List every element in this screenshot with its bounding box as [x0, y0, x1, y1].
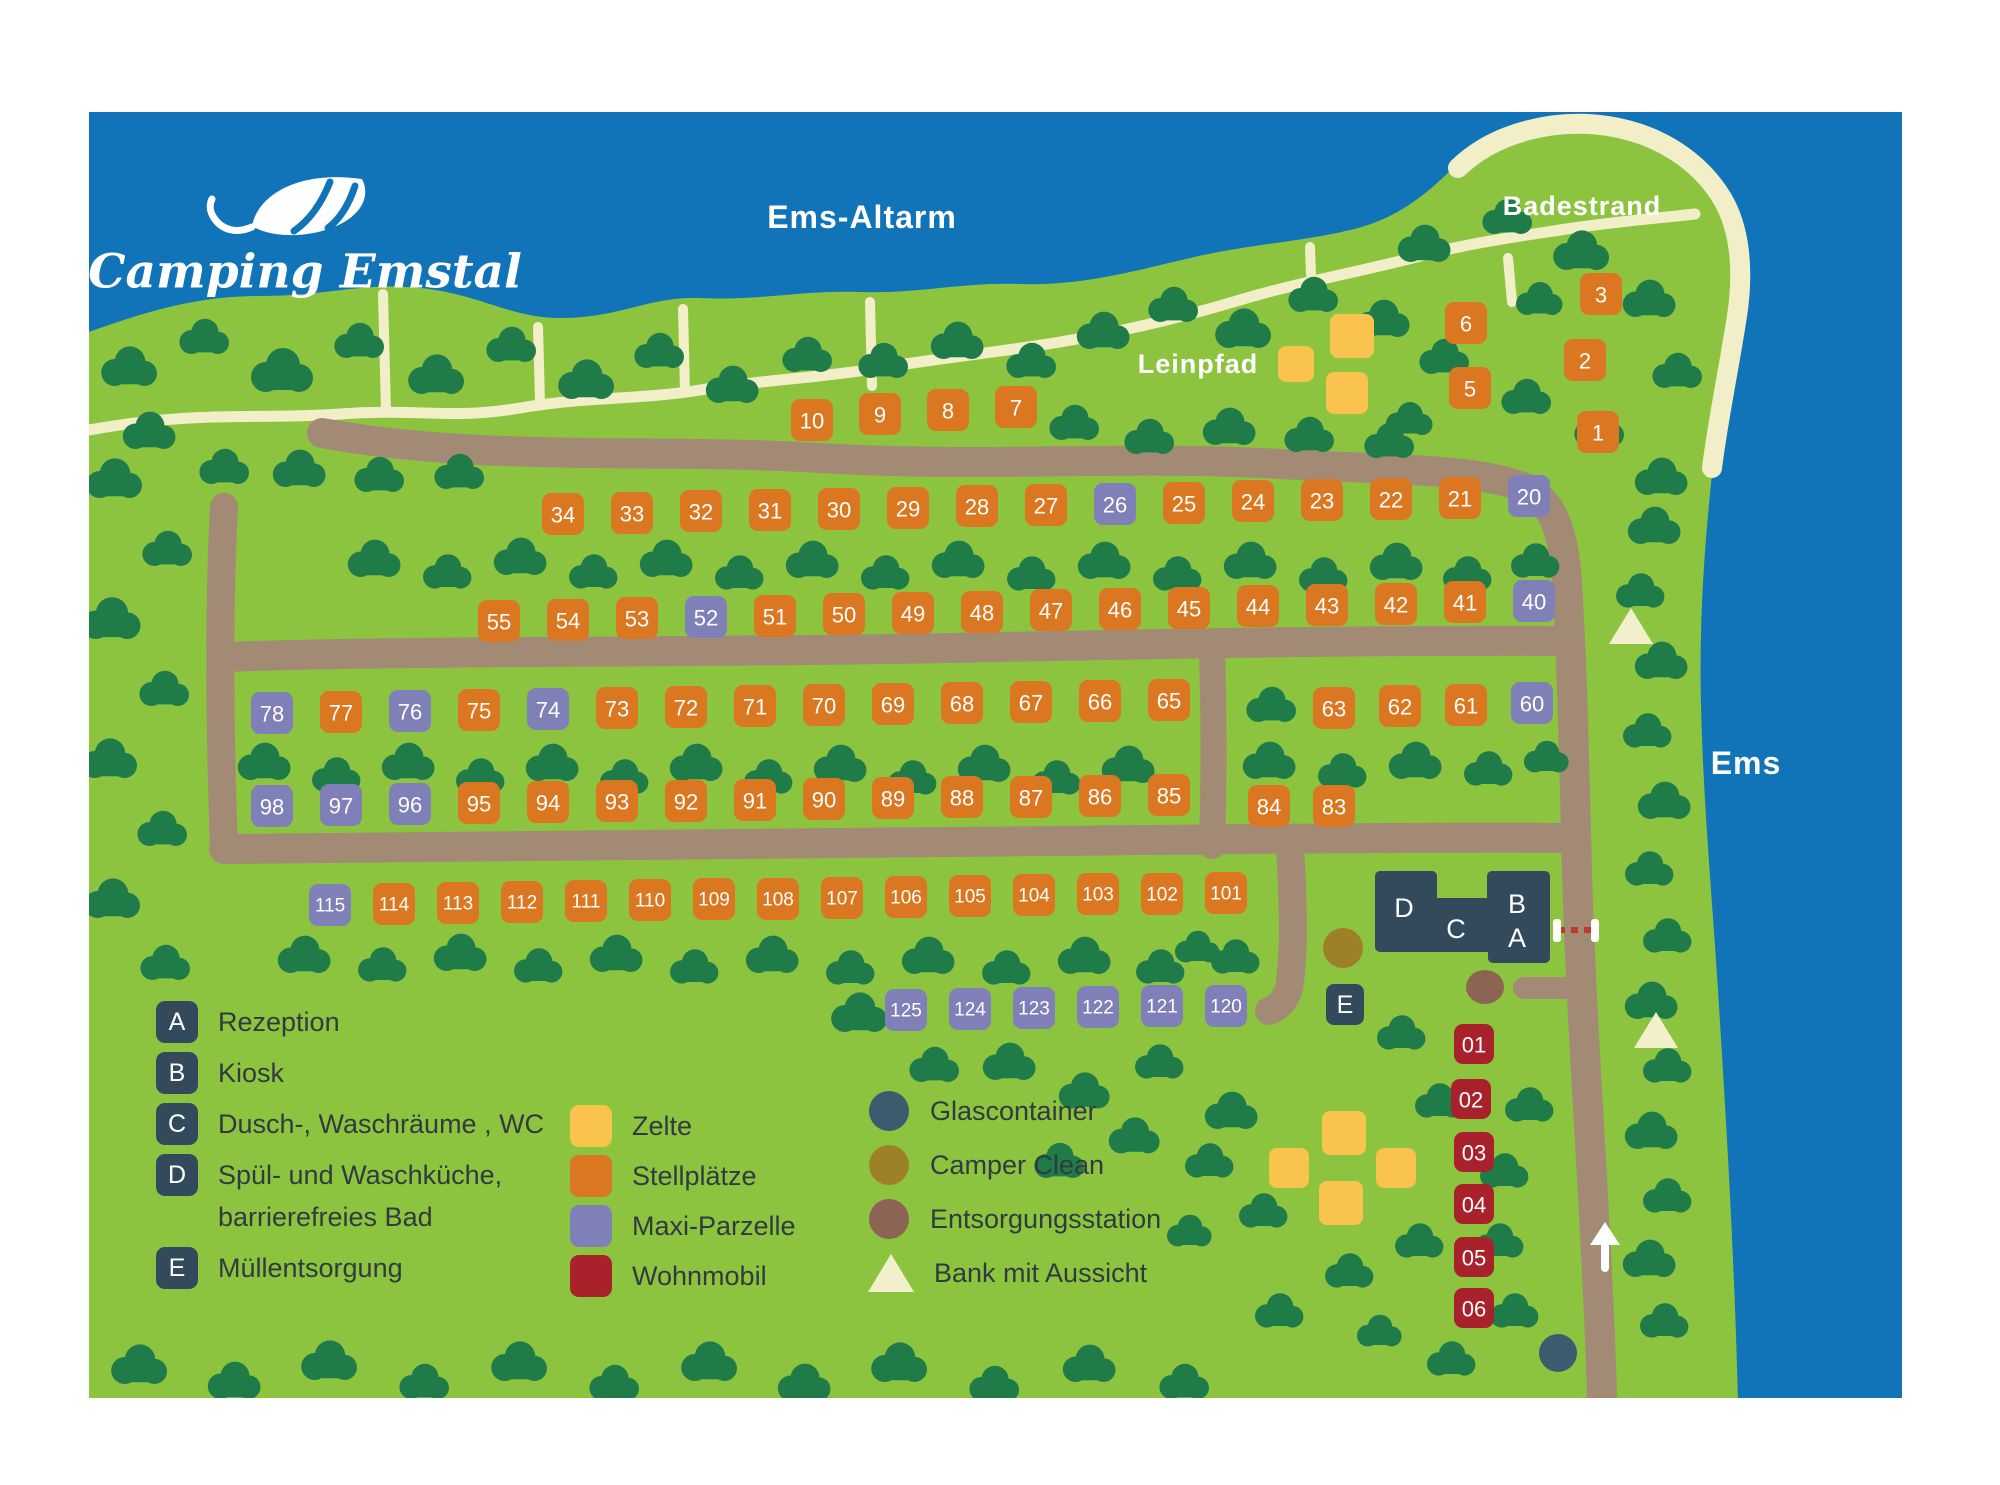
plot-number: 44 [1246, 595, 1270, 620]
plot-number: 94 [536, 791, 560, 816]
plot-103: 103 [1077, 873, 1119, 915]
plot-number: 63 [1322, 697, 1346, 722]
building-letter-b: B [1508, 889, 1526, 919]
plot-number: 1 [1592, 421, 1604, 446]
campground-map-page: D C B A E 109876532134333231302928272625… [0, 0, 2000, 1485]
plot-114: 114 [373, 883, 415, 925]
camper-clean-icon [1323, 928, 1363, 968]
road-row3 [224, 838, 1563, 849]
plot-29: 29 [887, 487, 929, 529]
legend-row: Entsorgungsstation [868, 1198, 1161, 1240]
plot-number: 02 [1459, 1088, 1483, 1113]
plot-71: 71 [734, 685, 776, 727]
plot-94: 94 [527, 781, 569, 823]
plot-87: 87 [1010, 776, 1052, 818]
plot-number: 97 [329, 794, 353, 819]
plot-92: 92 [665, 780, 707, 822]
plot-number: 90 [812, 788, 836, 813]
plot-number: 89 [881, 787, 905, 812]
plot-48: 48 [961, 591, 1003, 633]
plot-number: 96 [398, 793, 422, 818]
plot-number: 54 [556, 609, 580, 634]
plot-66: 66 [1079, 680, 1121, 722]
plot-number: 9 [874, 403, 886, 428]
water-top-label: Ems-Altarm [767, 199, 957, 235]
plot-02: 02 [1451, 1079, 1491, 1119]
tent-pitch [1278, 346, 1314, 382]
legend-key-e: E [156, 1247, 198, 1289]
plot-44: 44 [1237, 585, 1279, 627]
plot-89: 89 [872, 777, 914, 819]
plot-55: 55 [478, 600, 520, 642]
plot-68: 68 [941, 682, 983, 724]
legend-row: Wohnmobil [570, 1255, 796, 1297]
plot-number: 04 [1462, 1193, 1486, 1218]
plot-number: 01 [1462, 1033, 1486, 1058]
plot-number: 93 [605, 790, 629, 815]
plot-number: 20 [1517, 485, 1541, 510]
plot-number: 120 [1210, 997, 1242, 1018]
plot-number: 21 [1448, 487, 1472, 512]
legend-circle-icon [869, 1145, 909, 1185]
plot-number: 84 [1257, 795, 1281, 820]
plot-125: 125 [885, 989, 927, 1031]
road-left [220, 507, 224, 850]
plot-number: 70 [812, 694, 836, 719]
plot-24: 24 [1232, 480, 1274, 522]
plot-124: 124 [949, 988, 991, 1030]
plot-number: 2 [1579, 349, 1591, 374]
plot-number: 113 [443, 894, 473, 915]
plot-123: 123 [1013, 987, 1055, 1029]
legend-row: DSpül- und Waschküche, barrierefreies Ba… [156, 1154, 544, 1238]
plot-number: 114 [379, 895, 410, 916]
legend-facilities: ARezeptionBKioskCDusch-, Waschräume , WC… [156, 1001, 544, 1298]
plot-number: 122 [1082, 998, 1114, 1019]
legend-row: CDusch-, Waschräume , WC [156, 1103, 544, 1145]
plot-number: 45 [1177, 597, 1201, 622]
plot-number: 125 [890, 1001, 922, 1022]
tent-pitch [1326, 372, 1368, 414]
plot-102: 102 [1141, 873, 1183, 915]
plot-111: 111 [565, 880, 607, 922]
plot-number: 106 [890, 888, 922, 909]
plot-number: 104 [1018, 886, 1050, 907]
legend-row: ARezeption [156, 1001, 544, 1043]
plot-number: 62 [1388, 695, 1412, 720]
plot-number: 43 [1315, 594, 1339, 619]
plot-28: 28 [956, 485, 998, 527]
plot-number: 75 [467, 699, 491, 724]
legend-label: Wohnmobil [632, 1255, 767, 1297]
plot-91: 91 [734, 779, 776, 821]
plot-21: 21 [1439, 477, 1481, 519]
legend-key-b: B [156, 1052, 198, 1094]
plot-22: 22 [1370, 478, 1412, 520]
tent-pitch [1376, 1148, 1416, 1188]
plot-number: 78 [260, 702, 284, 727]
legend-key-d: D [156, 1154, 198, 1196]
plot-78: 78 [251, 692, 293, 734]
plot-107: 107 [821, 877, 863, 919]
legend-label: Zelte [632, 1105, 692, 1147]
building-letter-d: D [1394, 893, 1414, 923]
legend-points-of-interest: GlascontainerCamper CleanEntsorgungsstat… [868, 1090, 1161, 1306]
plot-63: 63 [1313, 687, 1355, 729]
plot-72: 72 [665, 686, 707, 728]
plot-49: 49 [892, 592, 934, 634]
plot-number: 10 [800, 409, 824, 434]
plot-5: 5 [1449, 367, 1491, 409]
road-mid [1212, 651, 1214, 846]
plot-number: 107 [826, 889, 858, 910]
plot-2: 2 [1564, 339, 1606, 381]
plot-number: 69 [881, 693, 905, 718]
plot-number: 88 [950, 786, 974, 811]
road-row2 [224, 641, 1562, 657]
plot-number: 52 [694, 606, 718, 631]
plot-115: 115 [309, 884, 351, 926]
plot-number: 65 [1157, 689, 1181, 714]
plot-number: 6 [1460, 312, 1472, 337]
plot-40: 40 [1513, 580, 1555, 622]
plot-45: 45 [1168, 587, 1210, 629]
building-letter-a: A [1508, 923, 1526, 953]
legend-row: Bank mit Aussicht [868, 1252, 1161, 1294]
legend-row: Maxi-Parzelle [570, 1205, 796, 1247]
logo-title: Camping Emstal [88, 245, 522, 300]
legend-pitch-types: ZelteStellplätzeMaxi-ParzelleWohnmobil [570, 1105, 796, 1305]
legend-label: Spül- und Waschküche, barrierefreies Bad [218, 1154, 502, 1238]
plot-number: 34 [551, 503, 575, 528]
plot-101: 101 [1205, 872, 1247, 914]
plot-105: 105 [949, 875, 991, 917]
plot-number: 3 [1595, 283, 1607, 308]
plot-8: 8 [927, 389, 969, 431]
plot-number: 27 [1034, 494, 1058, 519]
plot-97: 97 [320, 784, 362, 826]
plot-number: 42 [1384, 593, 1408, 618]
plot-121: 121 [1141, 985, 1183, 1027]
plot-113: 113 [437, 882, 479, 924]
plot-43: 43 [1306, 584, 1348, 626]
plot-112: 112 [501, 881, 543, 923]
legend-row: Stellplätze [570, 1155, 796, 1197]
plot-number: 73 [605, 697, 629, 722]
plot-52: 52 [685, 596, 727, 638]
plot-number: 76 [398, 700, 422, 725]
plot-number: 124 [954, 1000, 986, 1021]
legend-label: Rezeption [218, 1001, 340, 1043]
plot-3: 3 [1580, 273, 1622, 315]
plot-number: 31 [758, 499, 782, 524]
plot-9: 9 [859, 393, 901, 435]
plot-109: 109 [693, 878, 735, 920]
plot-number: 67 [1019, 691, 1043, 716]
plot-6: 6 [1445, 302, 1487, 344]
plot-03: 03 [1454, 1132, 1494, 1172]
legend-label: Camper Clean [930, 1144, 1104, 1186]
legend-row: EMüllentsorgung [156, 1247, 544, 1289]
legend-label: Bank mit Aussicht [934, 1252, 1147, 1294]
plot-30: 30 [818, 488, 860, 530]
plot-number: 5 [1464, 377, 1476, 402]
legend-swatch-icon [570, 1105, 612, 1147]
plot-95: 95 [458, 782, 500, 824]
plot-number: 51 [763, 605, 787, 630]
plot-number: 55 [487, 610, 511, 635]
towpath-label: Leinpfad [1138, 349, 1259, 379]
legend-label: Kiosk [218, 1052, 284, 1094]
plot-83: 83 [1313, 785, 1355, 827]
plot-50: 50 [823, 593, 865, 635]
plot-04: 04 [1454, 1184, 1494, 1224]
plot-number: 72 [674, 696, 698, 721]
plot-number: 8 [942, 399, 954, 424]
plot-number: 25 [1172, 492, 1196, 517]
plot-number: 92 [674, 790, 698, 815]
plot-number: 110 [635, 891, 665, 912]
plot-number: 32 [689, 500, 713, 525]
river-label: Ems [1711, 745, 1782, 781]
plot-96: 96 [389, 783, 431, 825]
plot-number: 53 [625, 607, 649, 632]
legend-row: Camper Clean [868, 1144, 1161, 1186]
tent-pitch [1269, 1148, 1309, 1188]
plot-number: 48 [970, 601, 994, 626]
legend-label: Maxi-Parzelle [632, 1205, 796, 1247]
plot-60: 60 [1511, 682, 1553, 724]
plot-number: 41 [1453, 591, 1477, 616]
plot-number: 101 [1210, 884, 1242, 905]
plot-69: 69 [872, 683, 914, 725]
legend-circle-icon [869, 1091, 909, 1131]
plot-54: 54 [547, 599, 589, 641]
plot-67: 67 [1010, 681, 1052, 723]
plot-number: 87 [1019, 786, 1043, 811]
legend-key-a: A [156, 1001, 198, 1043]
tent-pitch [1322, 1111, 1366, 1155]
legend-row: BKiosk [156, 1052, 544, 1094]
plot-62: 62 [1379, 685, 1421, 727]
plot-number: 77 [329, 701, 353, 726]
plot-number: 03 [1462, 1141, 1486, 1166]
plot-85: 85 [1148, 774, 1190, 816]
plot-number: 103 [1082, 885, 1114, 906]
plot-number: 68 [950, 692, 974, 717]
legend-circle-icon [869, 1199, 909, 1239]
plot-05: 05 [1454, 1237, 1494, 1277]
plot-34: 34 [542, 493, 584, 535]
plot-number: 61 [1454, 694, 1478, 719]
legend-label: Dusch-, Waschräume , WC [218, 1103, 544, 1145]
plot-70: 70 [803, 684, 845, 726]
glascontainer-icon [1539, 1334, 1577, 1372]
plot-number: 111 [572, 892, 601, 913]
plot-number: 60 [1520, 692, 1544, 717]
plot-number: 108 [762, 890, 794, 911]
legend-row: Glascontainer [868, 1090, 1161, 1132]
plot-1: 1 [1577, 411, 1619, 453]
plot-10: 10 [791, 399, 833, 441]
plot-65: 65 [1148, 679, 1190, 721]
plot-06: 06 [1454, 1288, 1494, 1328]
legend-label: Stellplätze [632, 1155, 757, 1197]
plot-73: 73 [596, 687, 638, 729]
plot-number: 115 [315, 896, 345, 917]
muellentsorgung-letter: E [1337, 991, 1354, 1019]
plot-number: 28 [965, 495, 989, 520]
plot-51: 51 [754, 595, 796, 637]
plot-122: 122 [1077, 986, 1119, 1028]
plot-98: 98 [251, 785, 293, 827]
plot-number: 98 [260, 795, 284, 820]
plot-number: 74 [536, 698, 560, 723]
plot-number: 33 [620, 502, 644, 527]
legend-swatch-icon [570, 1205, 612, 1247]
plot-33: 33 [611, 492, 653, 534]
plot-number: 121 [1146, 997, 1178, 1018]
legend-label: Müllentsorgung [218, 1247, 403, 1289]
plot-number: 30 [827, 498, 851, 523]
legend-swatch-icon [570, 1255, 612, 1297]
plot-41: 41 [1444, 581, 1486, 623]
legend-key-c: C [156, 1103, 198, 1145]
plot-01: 01 [1454, 1024, 1494, 1064]
building-letter-c: C [1446, 914, 1466, 944]
plot-number: 7 [1010, 396, 1022, 421]
tent-pitch [1330, 314, 1374, 358]
plot-26: 26 [1094, 483, 1136, 525]
plot-number: 83 [1322, 795, 1346, 820]
plot-number: 06 [1462, 1297, 1486, 1322]
plot-74: 74 [527, 688, 569, 730]
plot-number: 47 [1039, 599, 1063, 624]
plot-number: 49 [901, 602, 925, 627]
plot-86: 86 [1079, 775, 1121, 817]
plot-25: 25 [1163, 482, 1205, 524]
plot-75: 75 [458, 689, 500, 731]
plot-number: 102 [1146, 885, 1178, 906]
plot-number: 23 [1310, 489, 1334, 514]
plot-53: 53 [616, 597, 658, 639]
plot-104: 104 [1013, 874, 1055, 916]
plot-77: 77 [320, 691, 362, 733]
plot-number: 66 [1088, 690, 1112, 715]
plot-number: 26 [1103, 493, 1127, 518]
plot-number: 05 [1462, 1246, 1486, 1271]
plot-7: 7 [995, 386, 1037, 428]
plot-84: 84 [1248, 785, 1290, 827]
plot-number: 24 [1241, 490, 1265, 515]
plot-93: 93 [596, 780, 638, 822]
plot-61: 61 [1445, 684, 1487, 726]
legend-label: Glascontainer [930, 1090, 1097, 1132]
plot-number: 22 [1379, 488, 1403, 513]
plot-23: 23 [1301, 479, 1343, 521]
plot-46: 46 [1099, 588, 1141, 630]
entsorgungsstation-icon [1466, 970, 1504, 1004]
plot-number: 123 [1018, 999, 1050, 1020]
tent-pitch [1319, 1181, 1363, 1225]
plot-number: 112 [507, 893, 537, 914]
plot-number: 91 [743, 789, 767, 814]
plot-27: 27 [1025, 484, 1067, 526]
plot-20: 20 [1508, 475, 1550, 517]
plot-number: 46 [1108, 598, 1132, 623]
legend-label: Entsorgungsstation [930, 1198, 1161, 1240]
legend-swatch-icon [570, 1155, 612, 1197]
plot-110: 110 [629, 879, 671, 921]
beach-label: Badestrand [1503, 191, 1662, 221]
plot-number: 95 [467, 792, 491, 817]
plot-number: 50 [832, 603, 856, 628]
legend-row: Zelte [570, 1105, 796, 1147]
plot-number: 105 [954, 887, 986, 908]
plot-31: 31 [749, 489, 791, 531]
plot-number: 86 [1088, 785, 1112, 810]
plot-90: 90 [803, 778, 845, 820]
plot-88: 88 [941, 776, 983, 818]
plot-47: 47 [1030, 589, 1072, 631]
plot-number: 71 [743, 695, 767, 720]
legend-triangle-icon [868, 1254, 914, 1292]
plot-number: 40 [1522, 590, 1546, 615]
plot-42: 42 [1375, 583, 1417, 625]
plot-106: 106 [885, 876, 927, 918]
plot-number: 29 [896, 497, 920, 522]
plot-76: 76 [389, 690, 431, 732]
plot-32: 32 [680, 490, 722, 532]
plot-number: 109 [698, 890, 730, 911]
plot-108: 108 [757, 878, 799, 920]
plot-120: 120 [1205, 985, 1247, 1027]
plot-number: 85 [1157, 784, 1181, 809]
